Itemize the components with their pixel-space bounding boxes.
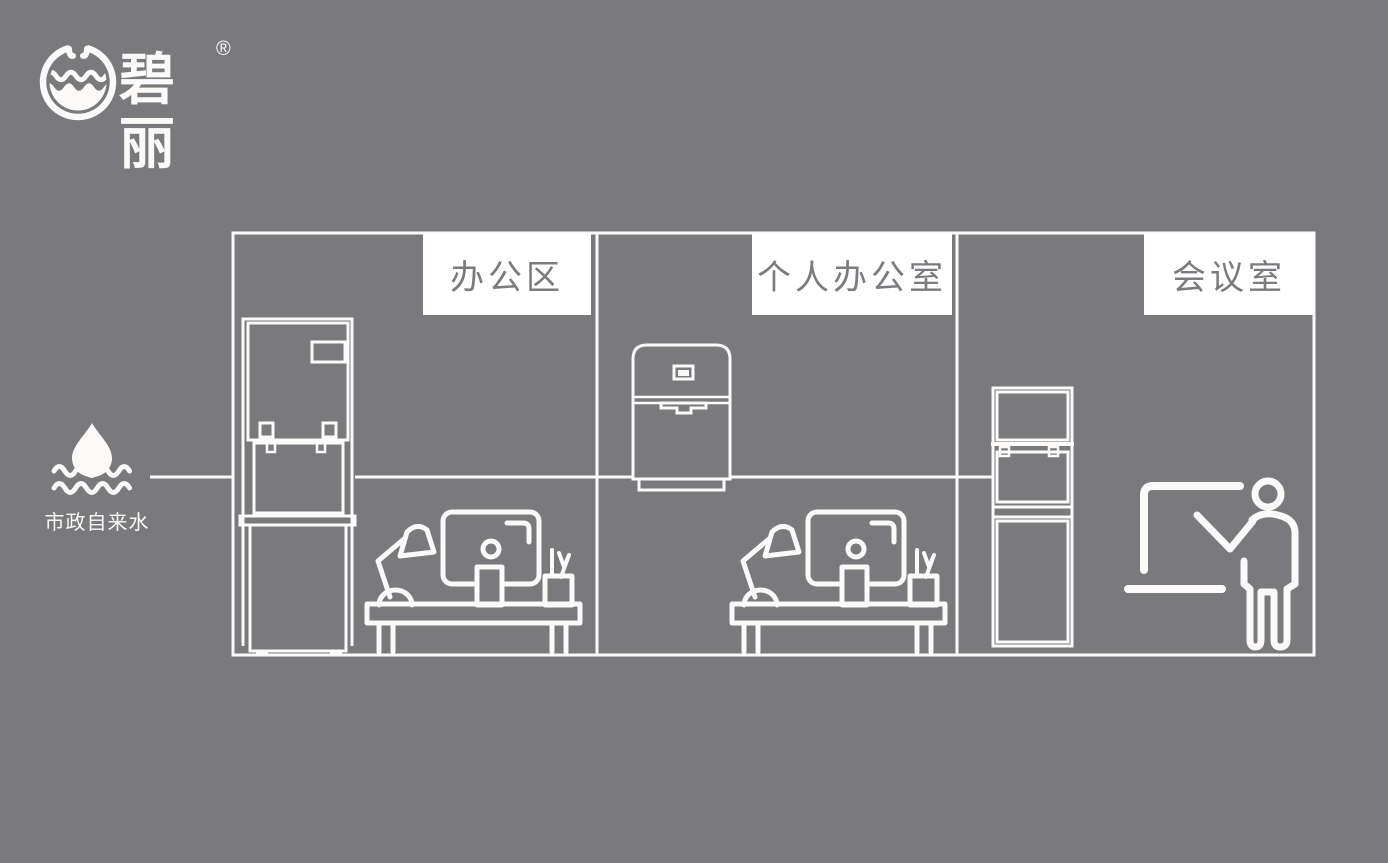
whiteboard	[1144, 486, 1240, 570]
logo-hook-right-icon	[83, 49, 87, 56]
room-label-meeting-room: 会议室	[1144, 233, 1314, 315]
presenter-head	[1255, 481, 1281, 507]
registered-trademark-mark: ®	[216, 38, 231, 61]
dispenser-button	[323, 423, 336, 437]
dispenser-display	[312, 342, 345, 362]
logo-mark	[43, 48, 116, 117]
logo-hook-left-icon	[69, 49, 73, 56]
room-label-office-area: 办公区	[423, 233, 591, 315]
presenter-arm	[1197, 515, 1253, 549]
dispenser-spout-icon	[661, 403, 706, 413]
countertop-dispenser	[633, 345, 730, 490]
room-label-private-office: 个人办公室	[752, 233, 952, 315]
diagram-canvas: 碧丽 ® 办公区 个人办公室 会议室 市政自来水	[0, 0, 1388, 863]
logo-wave-line-icon	[46, 72, 116, 80]
presenter-at-whiteboard	[1128, 481, 1295, 647]
brand-logo-text: 碧丽	[119, 48, 229, 112]
water-waves-icon	[54, 484, 130, 493]
presenter-body	[1244, 514, 1295, 647]
line-art-illustration	[0, 0, 1388, 863]
floor-standing-dispenser	[240, 319, 355, 656]
water-source-label: 市政自来水	[32, 506, 162, 535]
dispenser-button	[260, 423, 273, 437]
municipal-water-source	[54, 423, 130, 493]
upright-dispenser	[991, 388, 1074, 646]
